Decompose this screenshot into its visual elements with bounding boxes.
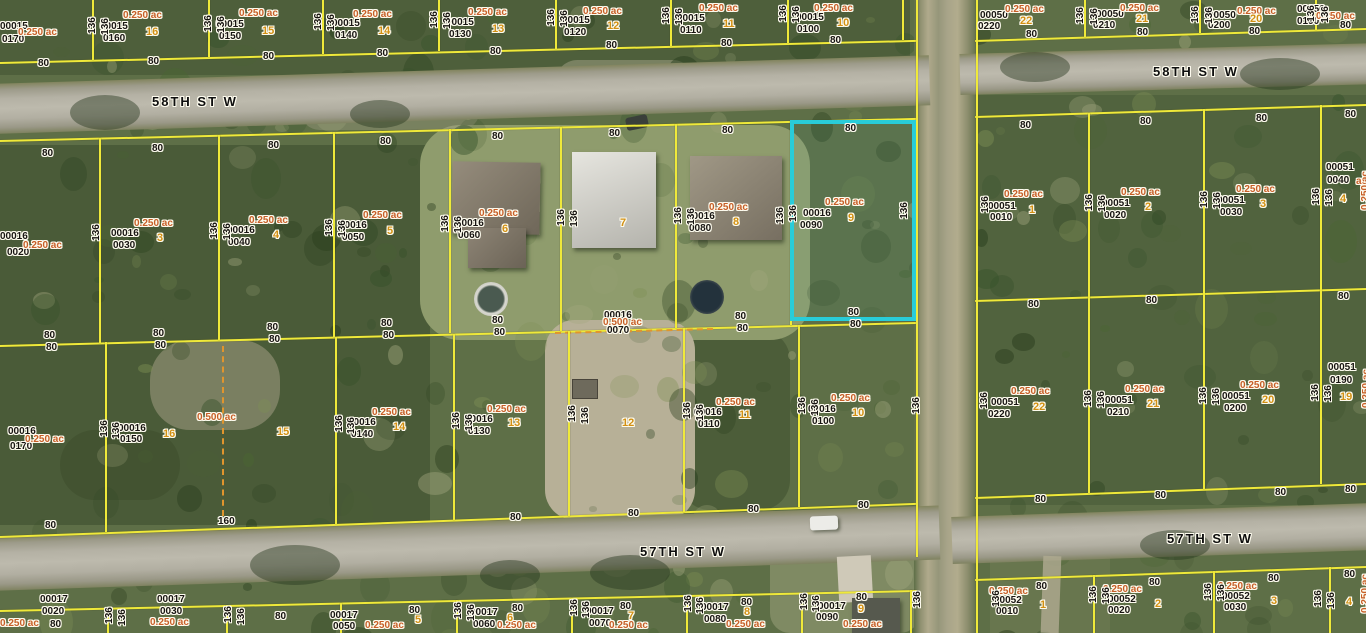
dimension-label: 136 <box>440 215 451 232</box>
dimension-label: 80 <box>46 342 57 353</box>
parcel-acreage-label: 0.500 ac <box>197 412 236 423</box>
dimension-label: 136 <box>223 606 234 623</box>
lot-number-label: 3 <box>1260 199 1266 210</box>
dimension-label: 136 <box>1204 7 1215 24</box>
dimension-label: 80 <box>50 619 61 630</box>
dimension-label: 80 <box>848 307 859 318</box>
dimension-label: 136 <box>222 223 233 240</box>
lot-number-label: 3 <box>1271 596 1277 607</box>
parcel-id-label: 0030 <box>1224 602 1246 613</box>
pool-lot8 <box>690 280 724 314</box>
parcel-acreage-label: 0.250 ac <box>814 3 853 14</box>
dimension-label: 80 <box>263 51 274 62</box>
street-name-label: 57TH ST W <box>1167 533 1253 544</box>
dimension-label: 136 <box>546 9 557 26</box>
dimension-label: 80 <box>1275 487 1286 498</box>
parcel-acreage-label: 0.500 ac <box>603 317 642 328</box>
dimension-label: 136 <box>236 608 247 625</box>
dimension-label: 80 <box>152 143 163 154</box>
dimension-label: 80 <box>381 318 392 329</box>
pool-lot6 <box>474 282 508 316</box>
lot-number-label: 7 <box>628 611 634 622</box>
parcel-id-label: 0150 <box>120 434 142 445</box>
dimension-label: 80 <box>609 128 620 139</box>
dimension-label: 136 <box>788 205 799 222</box>
parcel-id-label: 0140 <box>335 30 357 41</box>
lot-number-label: 9 <box>858 604 864 615</box>
dimension-label: 136 <box>991 590 1002 607</box>
boundary-line <box>683 328 685 512</box>
dimension-label: 80 <box>845 123 856 134</box>
dimension-label: 136 <box>334 415 345 432</box>
dimension-label: 80 <box>620 601 631 612</box>
house-roof-lot7 <box>572 152 656 248</box>
dimension-label: 136 <box>91 224 102 241</box>
dimension-label: 136 <box>775 207 786 224</box>
lot-number-label: 15 <box>277 427 289 438</box>
dimension-label: 80 <box>377 48 388 59</box>
parcel-id-label: 0210 <box>1107 407 1129 418</box>
street-name-label: 58TH ST W <box>1153 66 1239 77</box>
boundary-line <box>1213 571 1215 633</box>
dimension-label: 80 <box>1155 490 1166 501</box>
dimension-label: 136 <box>1306 5 1317 22</box>
dimension-label: 136 <box>1212 192 1223 209</box>
dimension-label: 136 <box>581 601 592 618</box>
parcel-acreage-label: 0.250 ac <box>468 7 507 18</box>
dimension-label: 160 <box>218 516 235 527</box>
lot-number-label: 3 <box>157 233 163 244</box>
parcel-map: 58TH ST W58TH ST W57TH ST W57TH ST W0001… <box>0 0 1366 633</box>
lot-number-label: 10 <box>852 408 864 419</box>
dimension-label: 136 <box>1323 385 1334 402</box>
lot-number-label: 8 <box>733 217 739 228</box>
tree-shadow <box>70 95 140 130</box>
lot-number-label: 12 <box>607 21 619 32</box>
parcel-acreage-label: 0.250 ac <box>843 619 882 630</box>
lot-number-label: 10 <box>837 18 849 29</box>
dimension-label: 136 <box>203 15 214 32</box>
parcel-acreage-label: 0.250 ac <box>1236 184 1275 195</box>
dimension-label: 136 <box>313 13 324 30</box>
parcel-id-label: 0220 <box>988 409 1010 420</box>
dimension-label: 80 <box>1345 109 1356 120</box>
parcel-id-label: 00016 <box>803 208 831 219</box>
lot-number-label: 1 <box>1029 205 1035 216</box>
parcel-id-label: 00051 <box>991 397 1019 408</box>
dimension-label: 80 <box>1345 484 1356 495</box>
parcel-id-label: 0100 <box>797 24 819 35</box>
lot-number-label: 4 <box>1340 194 1346 205</box>
tree-shadow <box>1000 52 1070 82</box>
dimension-label: 136 <box>216 16 227 33</box>
dimension-label: 136 <box>799 593 810 610</box>
lot-number-label: 21 <box>1147 399 1159 410</box>
parcel-acreage-label: 0.250 ac <box>239 8 278 19</box>
dimension-label: 80 <box>722 125 733 136</box>
parcel-id-label: 00016 <box>111 228 139 239</box>
boundary-line <box>916 0 918 557</box>
parcel-id-label: 0200 <box>1224 403 1246 414</box>
dimension-label: 136 <box>695 404 706 421</box>
dimension-label: 136 <box>337 220 348 237</box>
dimension-label: 80 <box>44 330 55 341</box>
lot-number-label: 9 <box>848 213 854 224</box>
parcel-acreage-label: 0.250 ac <box>123 10 162 21</box>
parcel-id-label: 00052 <box>1108 594 1136 605</box>
parcel-id-label: 0030 <box>1220 207 1242 218</box>
dimension-label: 136 <box>1084 194 1095 211</box>
dimension-label: 136 <box>1211 388 1222 405</box>
lot-number-label: 7 <box>620 218 626 229</box>
lot-number-label: 22 <box>1033 402 1045 413</box>
dimension-label: 80 <box>830 35 841 46</box>
shed-lot12 <box>572 379 598 399</box>
dimension-label: 136 <box>1313 590 1324 607</box>
parcel-acreage-label: 0.250 ac <box>1121 187 1160 198</box>
dimension-label: 80 <box>735 311 746 322</box>
dimension-label: 80 <box>153 328 164 339</box>
dimension-label: 136 <box>1311 188 1322 205</box>
lot-number-label: 20 <box>1250 14 1262 25</box>
tree-shadow <box>350 100 410 128</box>
boundary-line <box>1203 109 1205 489</box>
lot-number-label: 8 <box>744 607 750 618</box>
dimension-label: 136 <box>1101 587 1112 604</box>
dimension-label: 136 <box>567 405 578 422</box>
parcel-id-label: 00017 <box>818 601 846 612</box>
parcel-acreage-label: 0.250 ac <box>249 215 288 226</box>
dimension-label: 80 <box>1137 27 1148 38</box>
parcel-id-label: 0080 <box>704 614 726 625</box>
dimension-label: 136 <box>87 17 98 34</box>
tree-shadow <box>1240 58 1320 90</box>
lot-number-label: 16 <box>146 27 158 38</box>
lot-number-label: 5 <box>415 615 421 626</box>
dimension-label: 136 <box>346 417 357 434</box>
boundary-line <box>798 325 800 507</box>
dimension-label: 80 <box>737 323 748 334</box>
dimension-label: 80 <box>510 512 521 523</box>
dimension-label: 80 <box>409 605 420 616</box>
parcel-id-label: 0090 <box>816 612 838 623</box>
parcel-acreage-label: 0.250 ac <box>1360 574 1366 613</box>
lot-number-label: 2 <box>1155 599 1161 610</box>
dimension-label: 80 <box>490 46 501 57</box>
vehicle-57th-street <box>810 516 838 531</box>
parcel-id-label: 0090 <box>800 220 822 231</box>
dimension-label: 136 <box>209 222 220 239</box>
dimension-label: 80 <box>38 58 49 69</box>
dimension-label: 136 <box>117 609 128 626</box>
dimension-label: 136 <box>1216 584 1227 601</box>
boundary-line <box>105 342 107 532</box>
dimension-label: 80 <box>856 592 867 603</box>
dimension-label: 80 <box>1035 494 1046 505</box>
dimension-label: 80 <box>1036 581 1047 592</box>
dimension-label: 136 <box>453 602 464 619</box>
dimension-label: 136 <box>451 412 462 429</box>
street-name-label: 57TH ST W <box>640 546 726 557</box>
parcel-acreage-label: 0.250 ac <box>726 619 765 630</box>
parcel-acreage-label: 0.250 ac <box>699 3 738 14</box>
dimension-label: 136 <box>810 399 821 416</box>
dimension-label: 80 <box>380 136 391 147</box>
dimension-label: 80 <box>1140 116 1151 127</box>
dimension-label: 136 <box>453 216 464 233</box>
lot-number-label: 13 <box>492 24 504 35</box>
dimension-label: 136 <box>559 10 570 27</box>
dimension-label: 136 <box>661 7 672 24</box>
parcel-id-label: 00017 <box>330 610 358 621</box>
parcel-id-label: 0010 <box>990 212 1012 223</box>
dimension-label: 136 <box>682 402 693 419</box>
parcel-id-label: 00017 <box>157 594 185 605</box>
parcel-id-label: 00050 <box>980 10 1008 21</box>
dimension-label: 136 <box>111 422 122 439</box>
dimension-label: 80 <box>1149 577 1160 588</box>
parcel-acreage-label: 0.250 ac <box>831 393 870 404</box>
dimension-label: 136 <box>1097 195 1108 212</box>
parcel-acreage-label: 0.250 ac <box>1125 384 1164 395</box>
parcel-acreage-label: 0.250 ac <box>716 397 755 408</box>
dimension-label: 80 <box>1340 20 1351 31</box>
parcel-id-label: 0100 <box>812 416 834 427</box>
dimension-label: 136 <box>1203 583 1214 600</box>
parcel-id-label: 00051 <box>1326 162 1354 173</box>
dimension-label: 80 <box>1028 299 1039 310</box>
parcel-id-label: 0130 <box>449 29 471 40</box>
dimension-label: 136 <box>429 11 440 28</box>
boundary-line <box>560 127 562 331</box>
lot-number-label: 4 <box>273 230 279 241</box>
dimension-label: 80 <box>42 148 53 159</box>
dimension-label: 136 <box>1089 8 1100 25</box>
parcel-acreage-label: 0.250 ac <box>487 404 526 415</box>
dimension-label: 80 <box>1249 26 1260 37</box>
parcel-id-label: 00051 <box>1222 391 1250 402</box>
dimension-label: 80 <box>858 500 869 511</box>
parcel-acreage-label: 0.250 ac <box>1011 386 1050 397</box>
parcel-id-label: 00051 <box>1105 395 1133 406</box>
parcel-acreage-label: 0.250 ac <box>25 434 64 445</box>
dimension-label: 136 <box>99 420 110 437</box>
dimension-label: 136 <box>1324 189 1335 206</box>
dimension-label: 136 <box>1310 384 1321 401</box>
parcel-id-label: 0010 <box>996 606 1018 617</box>
parcel-acreage-label: 0.250 ac <box>1004 189 1043 200</box>
boundary-line <box>1088 113 1090 493</box>
parcel-id-label: 0220 <box>978 21 1000 32</box>
parcel-acreage-label: 0.250 ac <box>709 202 748 213</box>
dimension-label: 136 <box>674 8 685 25</box>
dimension-label: 136 <box>1096 391 1107 408</box>
parcel-id-label: 00017 <box>40 594 68 605</box>
dimension-label: 136 <box>1075 7 1086 24</box>
lot-number-label: 12 <box>622 418 634 429</box>
dimension-label: 136 <box>1190 6 1201 23</box>
lot-number-label: 22 <box>1020 16 1032 27</box>
dimension-label: 80 <box>492 315 503 326</box>
dimension-label: 136 <box>1199 191 1210 208</box>
parcel-id-label: 00051 <box>988 201 1016 212</box>
dimension-label: 136 <box>683 595 694 612</box>
lot-number-label: 19 <box>1340 392 1352 403</box>
dimension-label: 80 <box>1026 29 1037 40</box>
dimension-label: 80 <box>721 38 732 49</box>
dirt-path-east <box>1041 556 1062 633</box>
parcel-acreage-label: 0.250 ac <box>497 620 536 631</box>
dimension-label: 80 <box>1344 569 1355 580</box>
lot-number-label: 21 <box>1136 14 1148 25</box>
lot-number-label: 6 <box>502 224 508 235</box>
parcel-acreage-label: 0.250 ac <box>365 620 404 631</box>
lot-number-label: 1 <box>1040 600 1046 611</box>
parcel-acreage-label: 0.250 ac <box>583 6 622 17</box>
dimension-label: 136 <box>100 18 111 35</box>
dimension-label: 136 <box>556 209 567 226</box>
lot-number-label: 11 <box>723 19 735 30</box>
parcel-acreage-label: 0.250 ac <box>1005 4 1044 15</box>
dimension-label: 80 <box>748 504 759 515</box>
dimension-label: 136 <box>797 397 808 414</box>
parcel-id-label: 00051 <box>1328 362 1356 373</box>
dimension-label: 136 <box>911 397 922 414</box>
parcel-acreage-label: 0.250 ac <box>353 9 392 20</box>
dimension-label: 136 <box>324 219 335 236</box>
boundary-line <box>568 331 570 516</box>
boundary-line <box>675 124 677 328</box>
dimension-label: 136 <box>569 599 580 616</box>
parcel-id-label: 0040 <box>1327 175 1349 186</box>
driveway-lot9-south <box>837 555 873 603</box>
dimension-label: 80 <box>1146 295 1157 306</box>
dimension-label: 80 <box>1268 573 1279 584</box>
parcel-id-label: 0030 <box>160 606 182 617</box>
dimension-label: 136 <box>104 607 115 624</box>
lot-number-label: 14 <box>378 26 390 37</box>
parcel-id-label: 00016 <box>118 423 146 434</box>
parcel-acreage-label: 0.250 ac <box>1360 171 1366 210</box>
dimension-label: 136 <box>466 604 477 621</box>
dimension-label: 136 <box>1326 592 1337 609</box>
boundary-line <box>976 0 978 633</box>
boundary-line <box>902 0 904 40</box>
dimension-label: 80 <box>494 327 505 338</box>
parcel-acreage-label: 0.250 ac <box>23 240 62 251</box>
parcel-id-label: 0120 <box>564 27 586 38</box>
tree-shadow <box>480 560 540 590</box>
tree-shadow <box>590 555 670 590</box>
tree-shadow <box>250 545 340 585</box>
boundary-line <box>1093 575 1095 633</box>
dimension-label: 136 <box>1198 387 1209 404</box>
dimension-label: 80 <box>267 322 278 333</box>
parcel-acreage-label: 0.250 ac <box>363 210 402 221</box>
parcel-acreage-label: 0.250 ac <box>150 617 189 628</box>
lot-number-label: 2 <box>1145 202 1151 213</box>
parcel-acreage-label: 0.250 ac <box>0 618 39 629</box>
dimension-label: 80 <box>628 508 639 519</box>
dimension-label: 136 <box>912 591 923 608</box>
dimension-label: 136 <box>673 207 684 224</box>
dimension-label: 136 <box>686 208 697 225</box>
dimension-label: 80 <box>383 330 394 341</box>
dimension-label: 80 <box>1020 120 1031 131</box>
boundary-line <box>1320 105 1322 484</box>
parcel-acreage-label: 0.250 ac <box>1240 380 1279 391</box>
dimension-label: 80 <box>512 603 523 614</box>
dimension-label: 80 <box>148 56 159 67</box>
parcel-acreage-label: 0.250 ac <box>479 208 518 219</box>
parcel-id-label: 0050 <box>333 621 355 632</box>
dimension-label: 80 <box>492 131 503 142</box>
dimension-label: 80 <box>275 611 286 622</box>
dimension-label: 136 <box>569 210 580 227</box>
lot-number-label: 5 <box>387 226 393 237</box>
parcel-acreage-label: 0.250 ac <box>1361 369 1366 408</box>
parcel-id-label: 0070 <box>589 618 611 629</box>
dimension-label: 136 <box>442 12 453 29</box>
dimension-label: 136 <box>811 595 822 612</box>
parcel-acreage-label: 0.250 ac <box>18 27 57 38</box>
dimension-label: 80 <box>1338 291 1349 302</box>
lot-number-label: 15 <box>262 26 274 37</box>
dimension-label: 80 <box>606 40 617 51</box>
dimension-label: 80 <box>1256 113 1267 124</box>
dimension-label: 136 <box>1083 390 1094 407</box>
dimension-label: 80 <box>741 597 752 608</box>
dimension-label: 80 <box>45 520 56 531</box>
lot-number-label: 13 <box>508 418 520 429</box>
parcel-acreage-label: 0.250 ac <box>134 218 173 229</box>
dimension-label: 80 <box>850 319 861 330</box>
boundary-line <box>222 346 224 516</box>
parcel-acreage-label: 0.250 ac <box>372 407 411 418</box>
dimension-label: 136 <box>899 202 910 219</box>
lot-number-label: 14 <box>393 422 405 433</box>
dimension-label: 136 <box>580 407 591 424</box>
lot-number-label: 16 <box>163 429 175 440</box>
dimension-label: 136 <box>326 14 337 31</box>
lot-number-label: 20 <box>1262 395 1274 406</box>
dimension-label: 136 <box>1088 586 1099 603</box>
parcel-id-label: 0030 <box>113 240 135 251</box>
parcel-acreage-label: 0.250 ac <box>825 197 864 208</box>
parcel-id-label: 0020 <box>42 606 64 617</box>
dimension-label: 136 <box>695 597 706 614</box>
street-name-label: 58TH ST W <box>152 96 238 107</box>
dimension-label: 136 <box>980 196 991 213</box>
dimension-label: 80 <box>155 340 166 351</box>
lot-number-label: 4 <box>1346 597 1352 608</box>
dimension-label: 136 <box>778 5 789 22</box>
lot-number-label: 6 <box>507 613 513 624</box>
parcel-id-label: 0020 <box>1108 605 1130 616</box>
dimension-label: 80 <box>269 334 280 345</box>
parcel-id-label: 0110 <box>680 25 702 36</box>
dimension-label: 80 <box>268 140 279 151</box>
dimension-label: 136 <box>464 414 475 431</box>
lot-number-label: 11 <box>739 410 751 421</box>
dimension-label: 136 <box>1320 6 1331 23</box>
dimension-label: 136 <box>791 6 802 23</box>
dimension-label: 136 <box>979 392 990 409</box>
